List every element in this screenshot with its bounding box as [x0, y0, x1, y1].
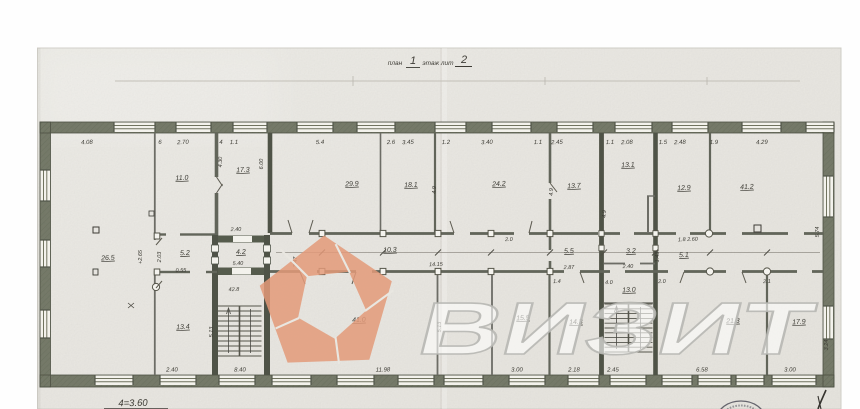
svg-text:11.98: 11.98: [376, 367, 391, 373]
svg-text:5.4: 5.4: [316, 140, 325, 146]
svg-text:2.03: 2.03: [157, 251, 163, 264]
svg-text:12.9: 12.9: [677, 185, 691, 193]
svg-text:1.1: 1.1: [534, 140, 543, 146]
svg-text:1.5: 1.5: [659, 140, 668, 146]
svg-text:41.2: 41.2: [740, 184, 754, 192]
svg-text:5.5: 5.5: [564, 248, 574, 256]
svg-text:17.3: 17.3: [236, 167, 250, 175]
svg-text:6.00: 6.00: [259, 158, 265, 170]
svg-text:3.40: 3.40: [481, 140, 494, 146]
svg-text:1: 1: [410, 55, 416, 67]
svg-text:2.1: 2.1: [762, 279, 771, 285]
svg-text:0.55: 0.55: [176, 268, 188, 274]
svg-text:13.7: 13.7: [567, 183, 582, 191]
svg-text:2: 2: [460, 54, 467, 66]
svg-text:2.40: 2.40: [230, 227, 243, 233]
svg-text:4.0: 4.0: [605, 280, 614, 286]
svg-text:1.43: 1.43: [655, 251, 661, 263]
svg-text:4.29: 4.29: [756, 140, 769, 146]
svg-text:29.9: 29.9: [344, 181, 359, 189]
svg-text:ВИЗИТ: ВИЗИТ: [410, 287, 823, 370]
svg-text:5.2: 5.2: [180, 250, 190, 258]
svg-text:4.9: 4.9: [602, 210, 608, 218]
svg-text:26.5: 26.5: [100, 255, 115, 263]
svg-text:2.0: 2.0: [657, 279, 667, 285]
svg-text:24.2: 24.2: [491, 181, 506, 189]
svg-text:2.87: 2.87: [563, 265, 576, 271]
svg-text:4.08: 4.08: [81, 140, 94, 146]
svg-text:2.0: 2.0: [504, 237, 514, 243]
svg-text:2.70: 2.70: [176, 140, 190, 146]
svg-text:13.1: 13.1: [621, 162, 635, 170]
svg-text:2.45: 2.45: [550, 140, 564, 146]
svg-text:2.48: 2.48: [673, 140, 687, 146]
svg-text:1.9: 1.9: [710, 140, 719, 146]
svg-text:5.74: 5.74: [815, 227, 821, 238]
svg-text:4.9: 4.9: [549, 188, 555, 196]
svg-text:1.1: 1.1: [606, 140, 615, 146]
svg-text:42.8: 42.8: [229, 287, 241, 293]
svg-text:1.4: 1.4: [553, 279, 561, 285]
svg-text:3.45: 3.45: [402, 140, 415, 146]
svg-text:8.40: 8.40: [234, 367, 246, 373]
svg-text:4=3.60: 4=3.60: [118, 398, 148, 409]
svg-text:14.15: 14.15: [429, 262, 444, 269]
svg-text:2.6: 2.6: [386, 140, 396, 146]
svg-text:10.3: 10.3: [383, 247, 397, 255]
svg-text:2.40: 2.40: [165, 367, 178, 373]
svg-text:план: план: [388, 60, 403, 67]
svg-text:1.8 2.60: 1.8 2.60: [678, 237, 699, 244]
svg-text:5.13: 5.13: [209, 326, 215, 338]
svg-text:2.40: 2.40: [622, 264, 635, 270]
svg-text:5.1: 5.1: [679, 252, 689, 260]
svg-text:13.4: 13.4: [176, 324, 190, 332]
svg-text:11.0: 11.0: [175, 175, 189, 183]
svg-text:1.2: 1.2: [442, 140, 451, 146]
svg-text:1.1: 1.1: [230, 140, 239, 146]
svg-text:4.9: 4.9: [432, 186, 438, 194]
svg-text:18.1: 18.1: [404, 182, 418, 190]
svg-text:5.40: 5.40: [233, 261, 245, 267]
svg-text:+2.65: +2.65: [138, 249, 144, 264]
svg-text:4.2: 4.2: [236, 249, 246, 257]
svg-text:2.08: 2.08: [620, 140, 634, 146]
svg-text:3.2: 3.2: [626, 248, 636, 256]
svg-text:этаж лит: этаж лит: [422, 60, 454, 67]
svg-text:3.24: 3.24: [824, 340, 830, 351]
svg-text:4.30: 4.30: [218, 156, 224, 168]
